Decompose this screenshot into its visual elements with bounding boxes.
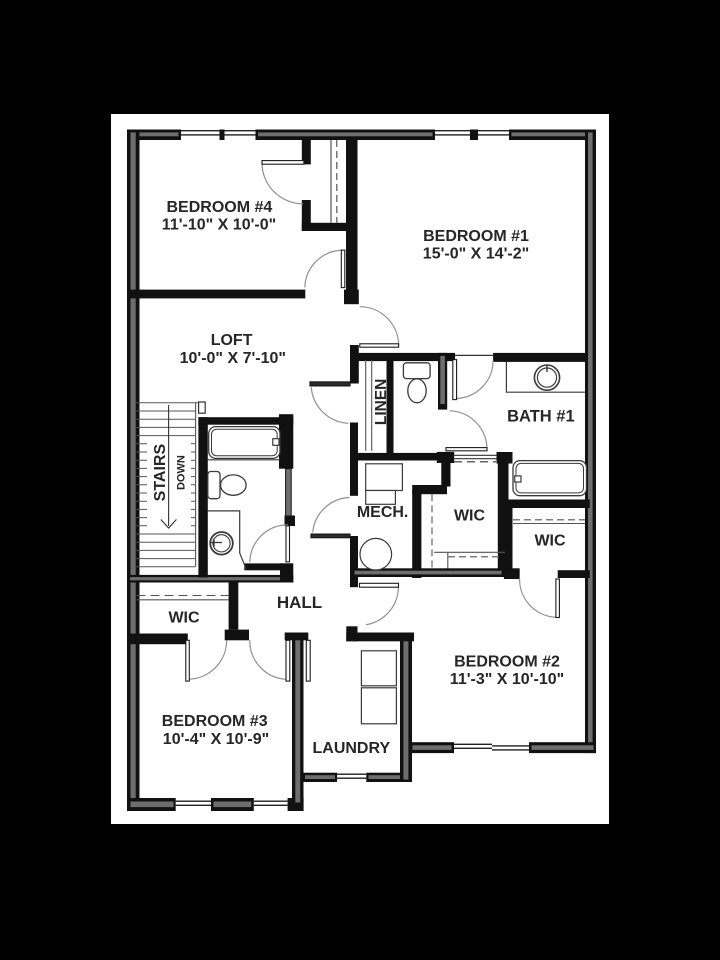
svg-text:BEDROOM #1: BEDROOM #1 <box>423 228 529 245</box>
svg-text:WIC: WIC <box>168 610 200 627</box>
svg-text:MECH.: MECH. <box>357 504 409 521</box>
svg-text:HALL: HALL <box>277 593 322 612</box>
svg-text:LAUNDRY: LAUNDRY <box>312 740 390 757</box>
svg-text:BEDROOM #3: BEDROOM #3 <box>162 713 268 730</box>
svg-text:10'-4" X 10'-9": 10'-4" X 10'-9" <box>163 731 269 748</box>
svg-text:15'-0" X 14'-2": 15'-0" X 14'-2" <box>423 246 529 263</box>
svg-text:11'-3" X 10'-10": 11'-3" X 10'-10" <box>450 671 564 688</box>
svg-text:STAIRS: STAIRS <box>152 444 169 502</box>
svg-text:10'-0" X 7'-10": 10'-0" X 7'-10" <box>180 350 286 367</box>
svg-text:BEDROOM #2: BEDROOM #2 <box>454 654 560 671</box>
svg-text:LOFT: LOFT <box>211 332 253 349</box>
svg-text:LINEN: LINEN <box>373 379 390 426</box>
svg-text:WIC: WIC <box>454 508 486 525</box>
svg-text:11'-10" X 10'-0": 11'-10" X 10'-0" <box>162 217 276 234</box>
svg-text:BEDROOM #4: BEDROOM #4 <box>167 199 273 216</box>
svg-text:BATH #1: BATH #1 <box>507 408 575 426</box>
svg-text:WIC: WIC <box>534 533 566 550</box>
svg-text:DOWN: DOWN <box>175 455 187 490</box>
